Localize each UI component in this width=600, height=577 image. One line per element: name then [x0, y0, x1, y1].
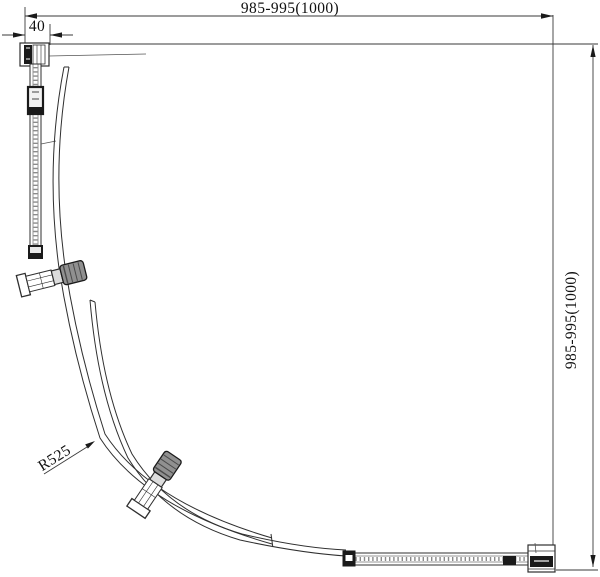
right-dim-arrow-top	[590, 45, 595, 57]
wall-profile-bottom-right	[528, 543, 555, 572]
top-dimension: 985-995(1000)	[25, 0, 553, 19]
rear-door-outer-line	[90, 300, 346, 556]
right-dimension: 985-995(1000)	[563, 45, 596, 567]
profile-leader-line	[49, 54, 146, 56]
dim40-arrow-left	[13, 32, 25, 37]
wall-profile-top-left	[20, 43, 146, 66]
handle-body	[26, 270, 55, 292]
radius-dimension: R525	[35, 441, 95, 475]
profile-width-label: 40	[29, 18, 45, 35]
extension-lines	[25, 7, 598, 570]
radius-label: R525	[35, 442, 74, 475]
top-dim-arrow-right	[541, 13, 553, 19]
rail-adjuster-block	[503, 556, 516, 565]
door-handle-left	[16, 259, 87, 297]
handle-knob	[59, 260, 87, 285]
right-dimension-label: 985-995(1000)	[563, 271, 580, 369]
fixed-panel-bottom	[343, 551, 537, 566]
top-dimension-label: 985-995(1000)	[241, 0, 339, 17]
shower-enclosure-technical-drawing: 985-995(1000) 40 985-995(1000) R525	[0, 0, 600, 577]
curved-door-rear	[90, 300, 346, 556]
glass-clamp-lower	[29, 246, 42, 258]
drawing-svg: 985-995(1000) 40 985-995(1000) R525	[0, 0, 600, 577]
glass-clamp-upper	[28, 87, 43, 114]
profile-width-dimension: 40	[2, 18, 73, 38]
dim40-arrow-right	[50, 32, 62, 37]
rear-door-inner-line	[95, 302, 346, 550]
right-dim-arrow-bottom	[590, 555, 595, 567]
fixed-panel-left	[28, 64, 56, 258]
rear-door-top-cap	[90, 300, 95, 302]
